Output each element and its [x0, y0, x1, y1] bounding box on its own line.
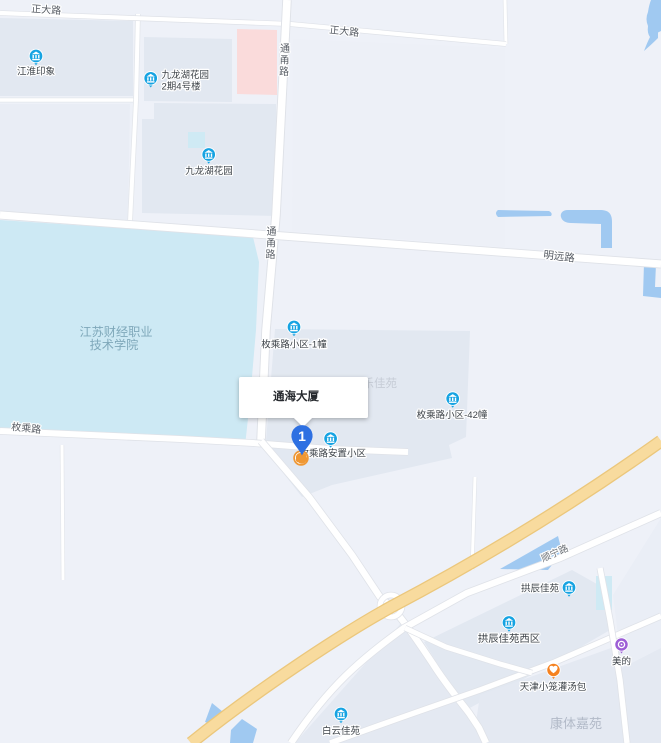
svg-text:江淮印象: 江淮印象 [17, 66, 56, 78]
svg-text:通: 通 [280, 43, 290, 55]
svg-text:2期4号楼: 2期4号楼 [162, 81, 202, 93]
svg-text:枚乘路小区-1幢: 枚乘路小区-1幢 [261, 339, 327, 351]
svg-text:1: 1 [298, 428, 306, 444]
svg-text:技术学院: 技术学院 [90, 337, 139, 352]
svg-text:拱辰佳苑西区: 拱辰佳苑西区 [478, 632, 540, 645]
svg-text:路: 路 [266, 248, 276, 261]
svg-text:甬: 甬 [280, 55, 290, 67]
svg-text:枚乘路小区-42幢: 枚乘路小区-42幢 [417, 409, 488, 421]
svg-text:康体嘉苑: 康体嘉苑 [550, 716, 602, 731]
svg-text:枚乘路安置小区: 枚乘路安置小区 [300, 448, 367, 460]
svg-text:美的: 美的 [612, 656, 631, 668]
svg-text:路: 路 [279, 65, 289, 78]
svg-text:通海大厦: 通海大厦 [273, 389, 319, 403]
svg-text:通: 通 [267, 226, 277, 238]
svg-text:天津小笼灌汤包: 天津小笼灌汤包 [520, 681, 587, 693]
svg-text:九龙湖花园: 九龙湖花园 [185, 165, 233, 177]
svg-text:拱辰佳苑: 拱辰佳苑 [521, 583, 560, 595]
svg-text:江苏财经职业: 江苏财经职业 [79, 325, 152, 339]
svg-text:甬: 甬 [266, 238, 276, 250]
svg-text:白云佳苑: 白云佳苑 [322, 725, 361, 737]
svg-text:九龙湖花园: 九龙湖花园 [162, 69, 210, 81]
